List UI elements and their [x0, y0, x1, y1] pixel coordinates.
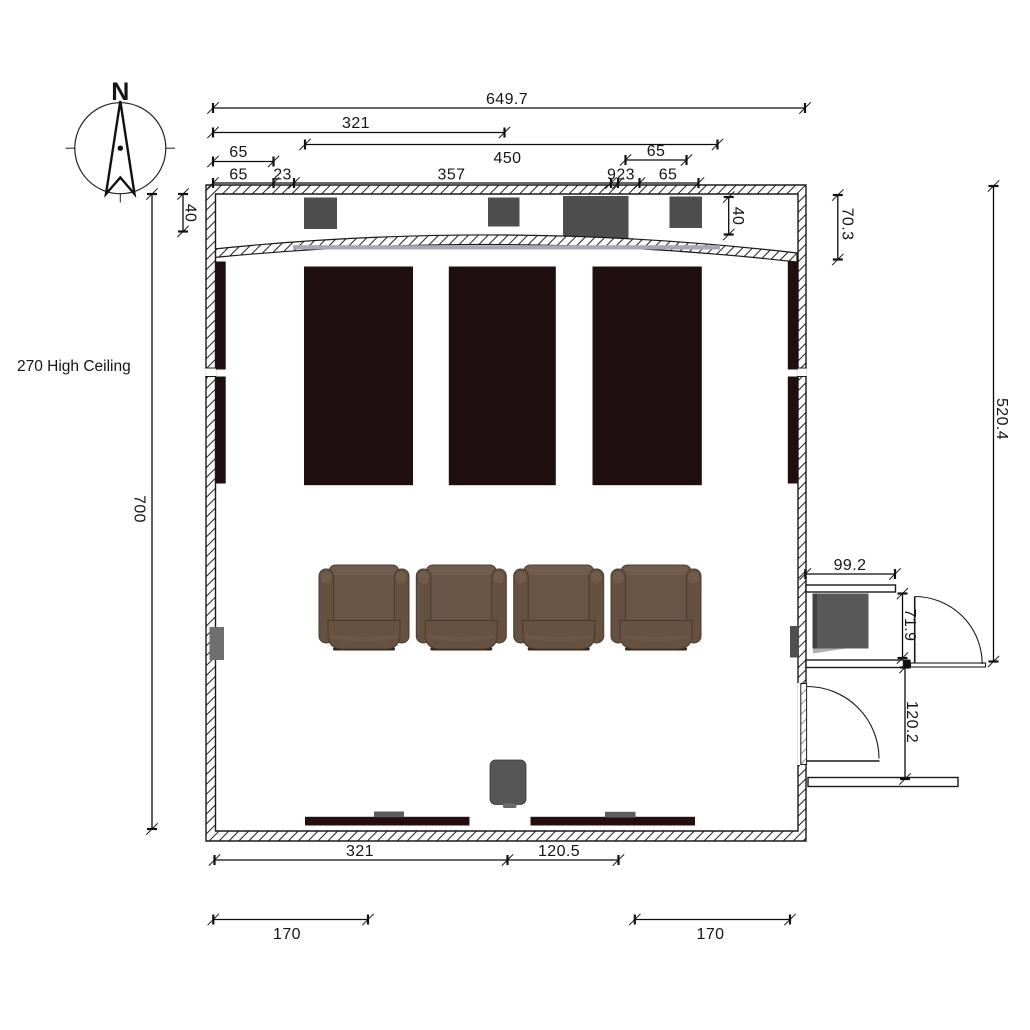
svg-text:65: 65: [229, 167, 248, 184]
svg-text:170: 170: [697, 926, 725, 943]
svg-text:357: 357: [438, 167, 466, 184]
svg-text:40: 40: [182, 204, 199, 223]
svg-text:700: 700: [131, 495, 148, 523]
svg-text:450: 450: [494, 150, 522, 167]
svg-text:65: 65: [229, 144, 248, 161]
svg-text:71.9: 71.9: [901, 609, 918, 642]
svg-text:270 High Ceiling: 270 High Ceiling: [17, 358, 131, 375]
svg-text:65: 65: [659, 167, 678, 184]
svg-text:99.2: 99.2: [834, 557, 867, 574]
svg-text:23: 23: [273, 167, 292, 184]
svg-text:170: 170: [273, 926, 301, 943]
svg-text:70.3: 70.3: [839, 208, 856, 241]
svg-text:923: 923: [607, 167, 635, 184]
svg-text:120.5: 120.5: [538, 843, 580, 860]
svg-text:649.7: 649.7: [486, 91, 528, 108]
svg-text:65: 65: [647, 143, 666, 160]
svg-text:520.4: 520.4: [993, 398, 1010, 440]
svg-text:40: 40: [729, 207, 746, 226]
svg-text:321: 321: [342, 115, 370, 132]
svg-text:120.2: 120.2: [903, 701, 920, 743]
svg-text:321: 321: [346, 843, 374, 860]
